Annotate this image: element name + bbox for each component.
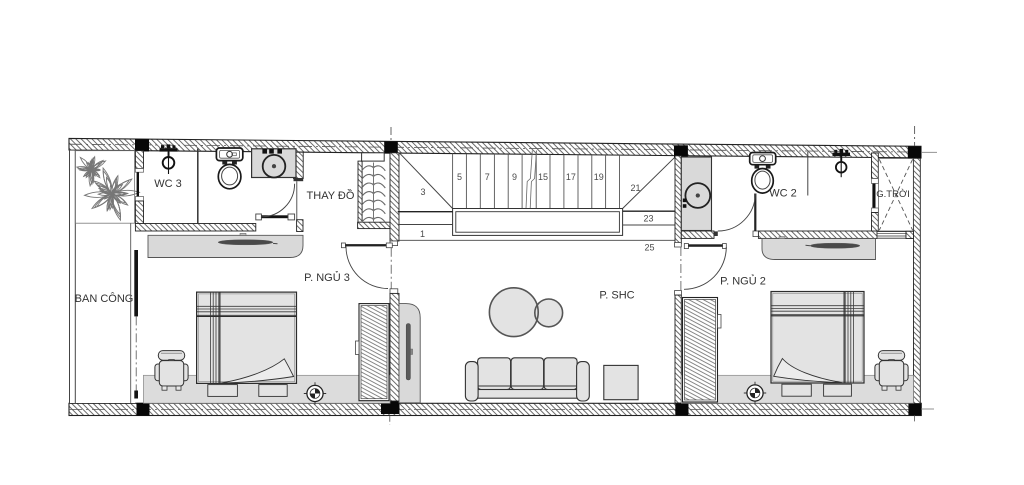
svg-text:1: 1: [420, 229, 425, 239]
svg-text:BAN CÔNG: BAN CÔNG: [75, 292, 134, 305]
svg-text:WC 2: WC 2: [769, 188, 797, 200]
svg-text:P. SHC: P. SHC: [599, 290, 634, 302]
svg-text:G.TRỜI: G.TRỜI: [876, 189, 909, 200]
svg-text:17: 17: [566, 172, 576, 182]
svg-text:THAY ĐỒ: THAY ĐỒ: [307, 189, 355, 202]
svg-text:3: 3: [420, 187, 425, 197]
svg-text:WC 3: WC 3: [154, 178, 182, 190]
svg-text:21: 21: [630, 183, 640, 193]
svg-text:23: 23: [643, 214, 653, 224]
svg-text:25: 25: [644, 243, 654, 253]
svg-text:19: 19: [594, 172, 604, 182]
svg-text:5: 5: [457, 172, 462, 182]
svg-text:P. NGỦ 2: P. NGỦ 2: [720, 275, 766, 288]
svg-text:9: 9: [512, 172, 517, 182]
svg-text:7: 7: [485, 172, 490, 182]
svg-text:P. NGỦ 3: P. NGỦ 3: [304, 271, 350, 284]
svg-text:15: 15: [538, 172, 548, 182]
